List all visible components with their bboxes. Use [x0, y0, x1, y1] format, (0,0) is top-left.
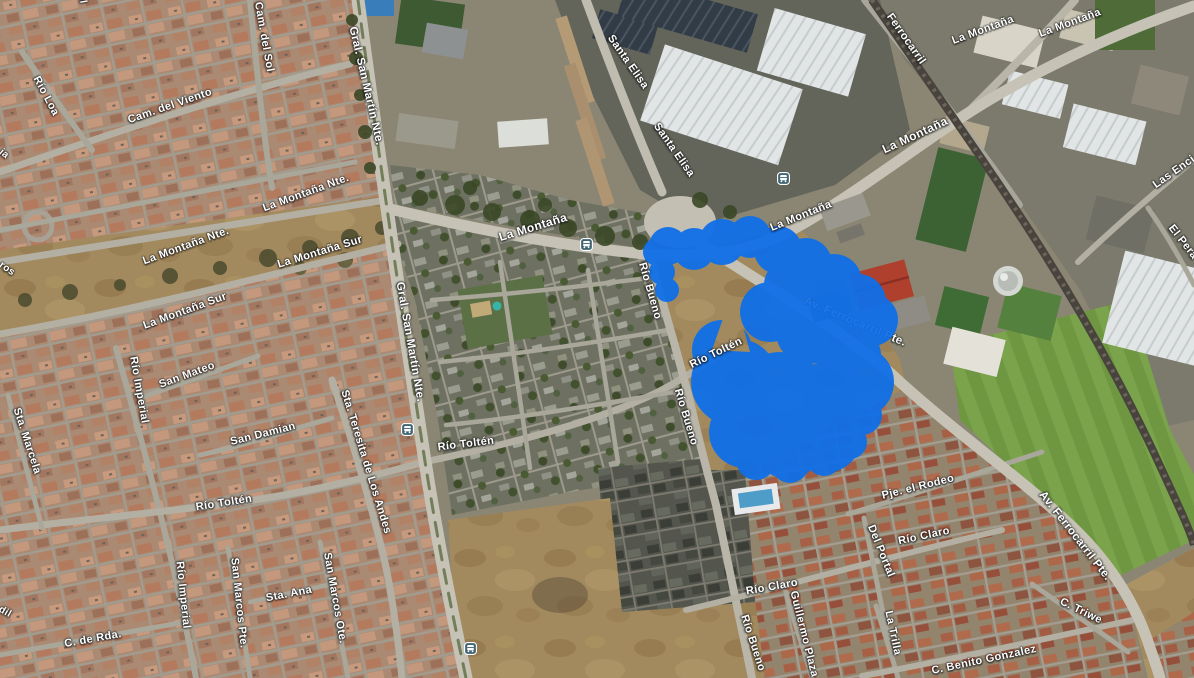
- bus-stop-icon[interactable]: [401, 423, 414, 436]
- bus-stop-icon[interactable]: [464, 642, 477, 655]
- satellite-imagery: [0, 0, 1194, 678]
- bus-stop-icon[interactable]: [580, 238, 593, 251]
- bus-stop-icon[interactable]: [777, 172, 790, 185]
- satellite-map[interactable]: Av. Ferrocarril Pte. Cam. del Soldel Sol…: [0, 0, 1194, 678]
